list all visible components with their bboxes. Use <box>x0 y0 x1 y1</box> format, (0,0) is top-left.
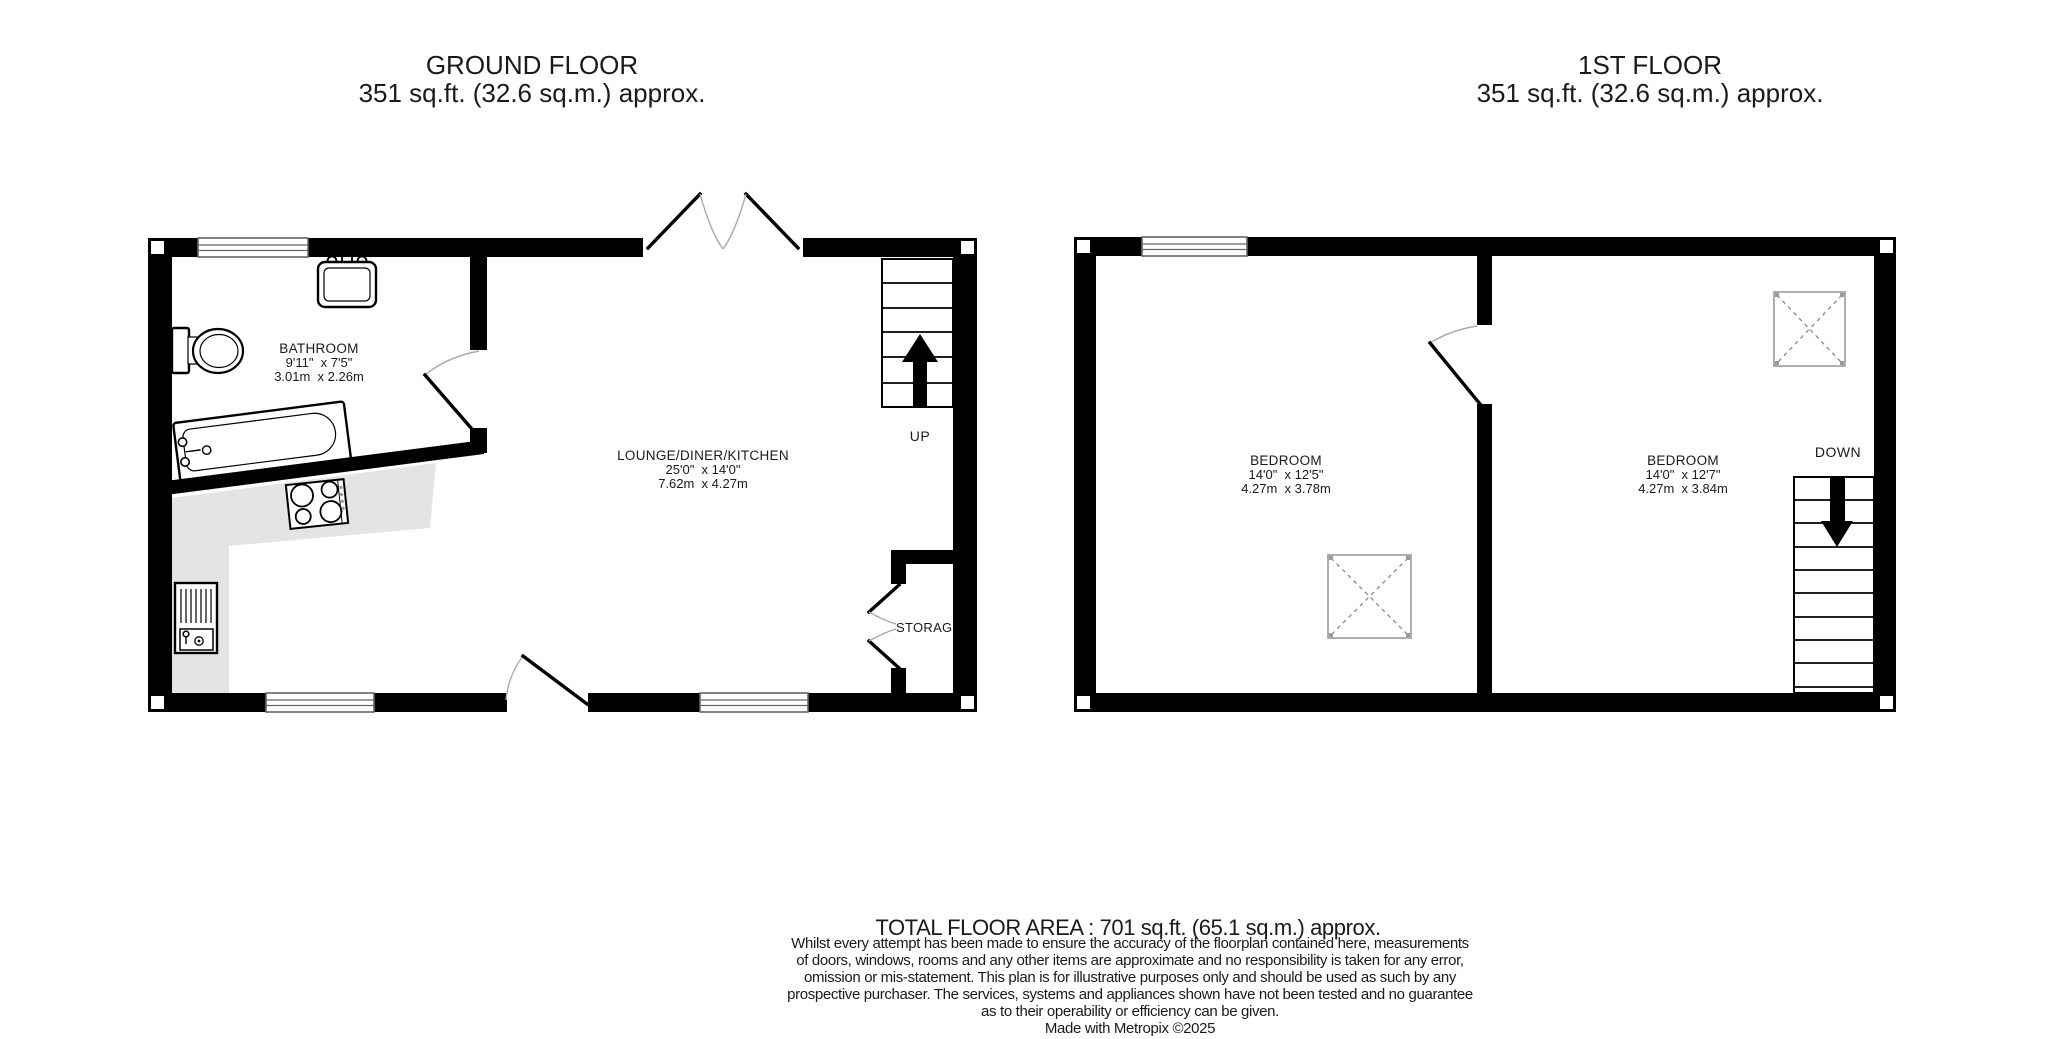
hob-icon <box>286 479 348 529</box>
disclaimer-line: prospective purchaser. The services, sys… <box>787 986 1473 1003</box>
first-floor-title: 1ST FLOOR <box>1578 50 1722 80</box>
skylight-icon <box>1774 292 1845 366</box>
down-label: DOWN <box>1815 444 1861 460</box>
kitchen-sink-icon <box>175 583 217 653</box>
up-label: UP <box>910 428 930 444</box>
svg-text:25'0" x 14'0": 25'0" x 14'0" <box>666 462 741 477</box>
bedroom-divider-wall <box>1477 237 1492 325</box>
svg-text:LOUNGE/DINER/KITCHEN: LOUNGE/DINER/KITCHEN <box>617 448 789 463</box>
disclaimer-line: omission or mis-statement. This plan is … <box>804 969 1457 986</box>
basin-icon <box>318 255 376 307</box>
storage-doors <box>869 585 899 668</box>
first-floor-area: 351 sq.ft. (32.6 sq.m.) approx. <box>1477 78 1824 108</box>
window <box>1142 237 1247 256</box>
ground-floor-title: GROUND FLOOR <box>426 50 638 80</box>
window <box>700 693 808 712</box>
bedroom1-label: BEDROOM 14'0" x 12'5" 4.27m x 3.78m <box>1241 453 1331 496</box>
staircase-up <box>882 259 953 407</box>
rear-door <box>506 656 587 704</box>
ground-walls <box>148 238 977 712</box>
floorplan-page: GROUND FLOOR 351 sq.ft. (32.6 sq.m.) app… <box>0 0 2048 1039</box>
svg-text:BATHROOM: BATHROOM <box>279 341 358 356</box>
svg-text:9'11" x 7'5": 9'11" x 7'5" <box>286 355 353 370</box>
storage-label: STORAGE <box>896 620 961 635</box>
svg-text:14'0" x 12'7": 14'0" x 12'7" <box>1646 467 1721 482</box>
bathroom-partition-wall <box>470 238 487 350</box>
first-floor-plan: DOWN BEDROOM 14'0" x 12'5" 4.27m x 3.78m… <box>1074 237 1896 712</box>
svg-text:14'0" x 12'5": 14'0" x 12'5" <box>1249 467 1324 482</box>
disclaimer-line: as to their operability or efficiency ca… <box>981 1003 1279 1020</box>
credit-line: Made with Metropix ©2025 <box>1045 1020 1215 1037</box>
bathroom-door <box>425 351 479 436</box>
bedroom2-label: BEDROOM 14'0" x 12'7" 4.27m x 3.84m <box>1638 453 1728 496</box>
svg-text:BEDROOM: BEDROOM <box>1250 453 1322 468</box>
first-walls <box>1074 237 1896 712</box>
toilet-icon <box>172 328 243 373</box>
lounge-label: LOUNGE/DINER/KITCHEN 25'0" x 14'0" 7.62m… <box>617 448 789 491</box>
disclaimer-line: Whilst every attempt has been made to en… <box>791 935 1469 952</box>
svg-text:7.62m x 4.27m: 7.62m x 4.27m <box>658 476 748 491</box>
window <box>198 238 308 257</box>
svg-text:3.01m x 2.26m: 3.01m x 2.26m <box>274 369 364 384</box>
floorplan-drawing: GROUND FLOOR 351 sq.ft. (32.6 sq.m.) app… <box>0 0 2048 1039</box>
svg-text:BEDROOM: BEDROOM <box>1647 453 1719 468</box>
staircase-down <box>1794 477 1874 693</box>
ground-floor-plan: STORAGE <box>148 194 977 712</box>
svg-text:4.27m x 3.78m: 4.27m x 3.78m <box>1241 481 1331 496</box>
skylight-icon <box>1328 555 1411 638</box>
footer: TOTAL FLOOR AREA : 701 sq.ft. (65.1 sq.m… <box>787 915 1473 1037</box>
bedroom-door <box>1430 326 1480 404</box>
bathroom-label: BATHROOM 9'11" x 7'5" 3.01m x 2.26m <box>274 341 364 384</box>
window <box>266 693 374 712</box>
ground-floor-area: 351 sq.ft. (32.6 sq.m.) approx. <box>359 78 706 108</box>
french-doors <box>648 194 798 249</box>
svg-text:4.27m x 3.84m: 4.27m x 3.84m <box>1638 481 1728 496</box>
disclaimer-line: of doors, windows, rooms and any other i… <box>796 952 1463 969</box>
